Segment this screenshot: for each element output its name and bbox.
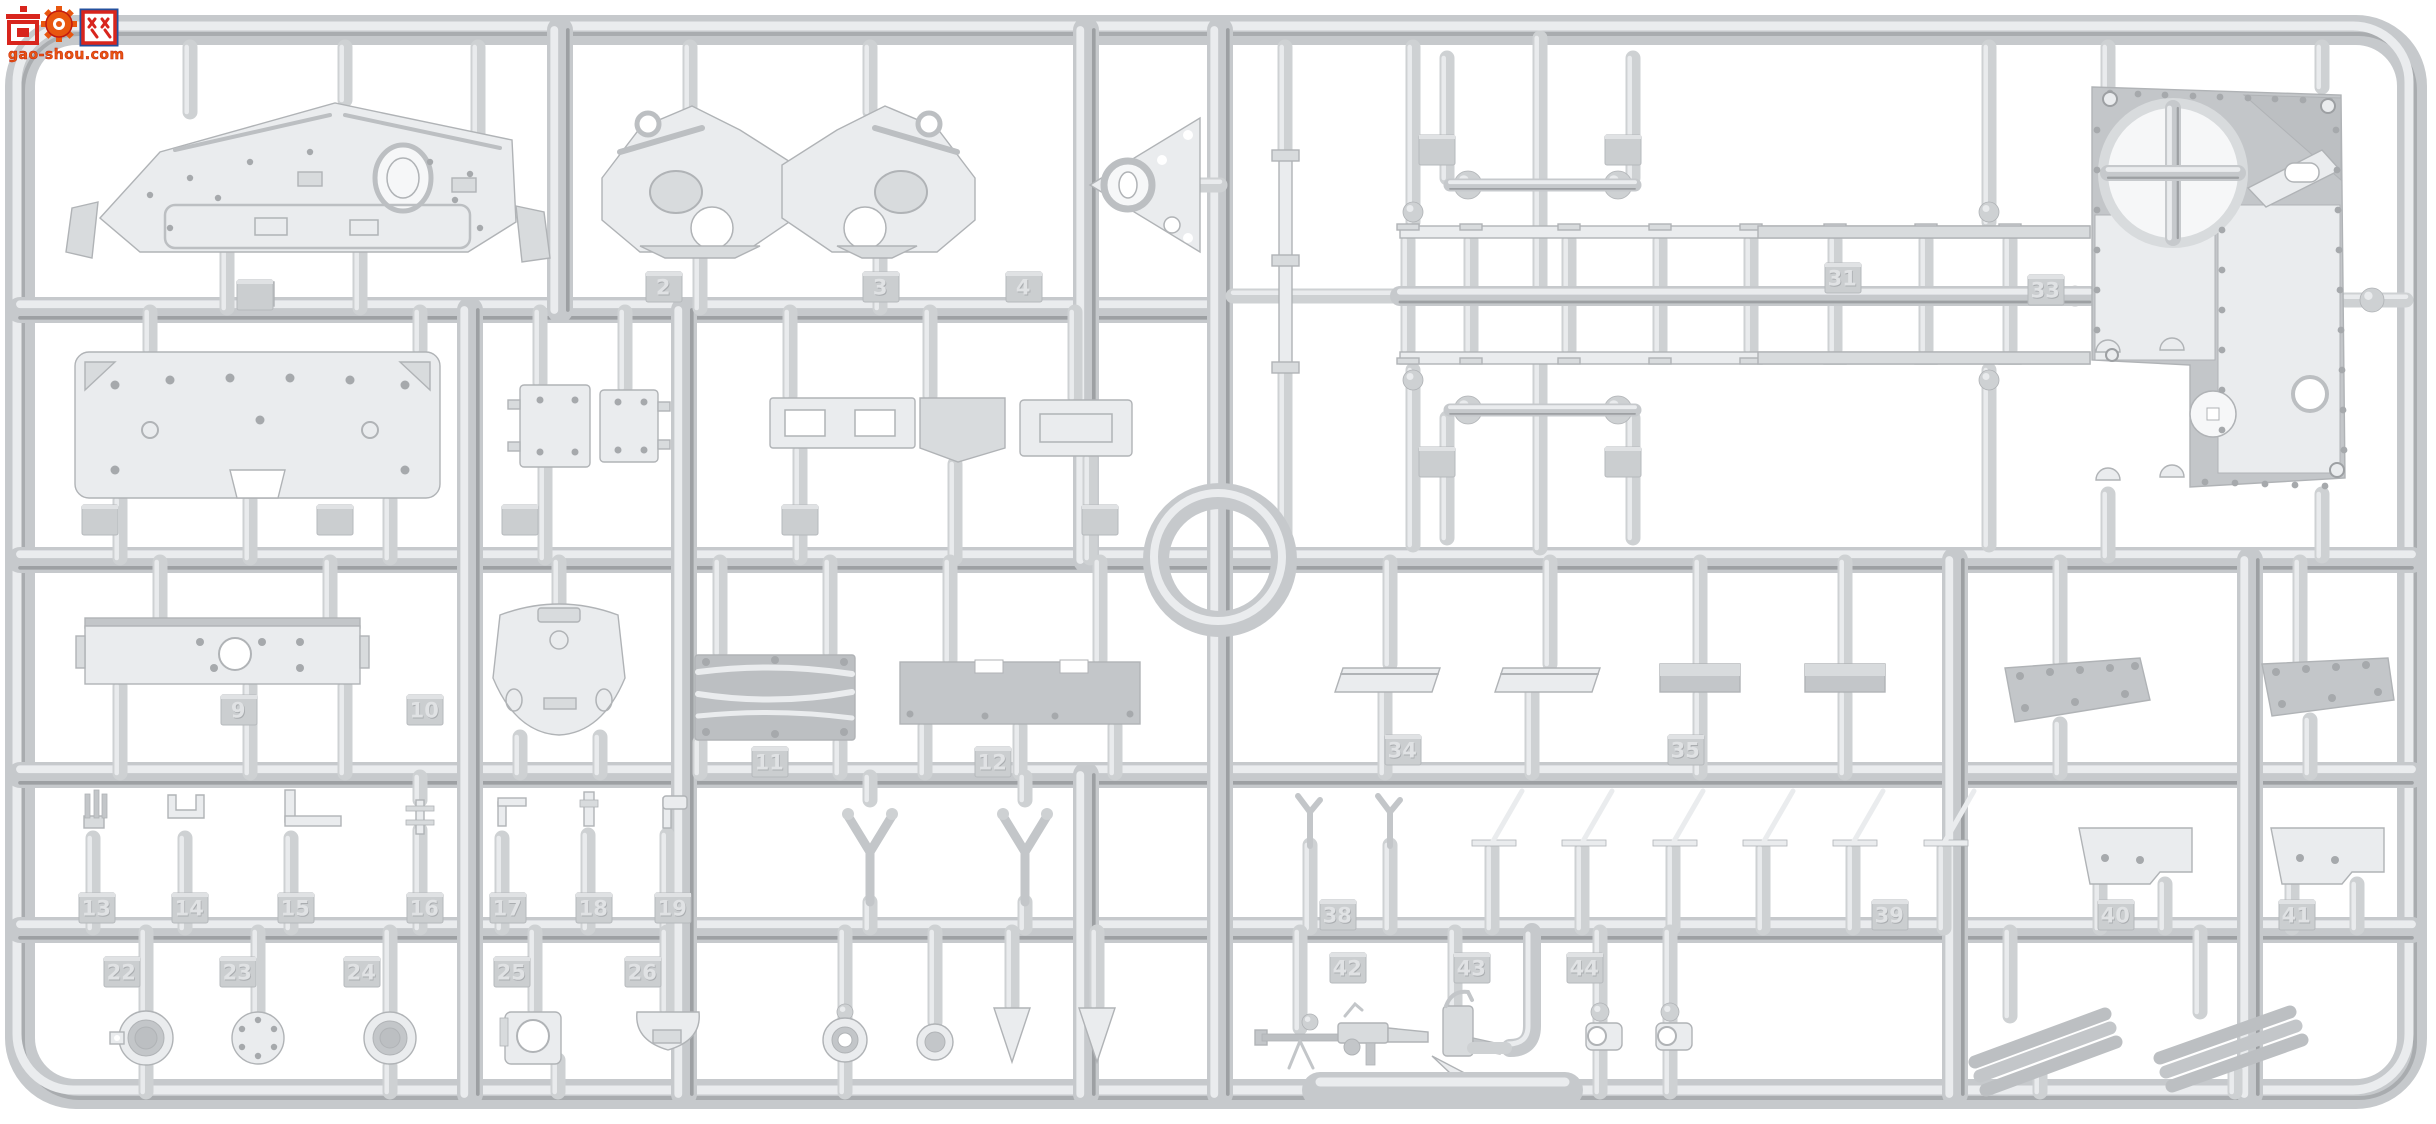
part-number-tab-blank: [782, 505, 818, 535]
svg-text:13: 13: [82, 897, 111, 921]
part-number-tab-26: 2626: [625, 957, 661, 987]
part-ring-small-b: [917, 1024, 953, 1060]
part-hatch-ring-24: [364, 1012, 416, 1064]
svg-text:42: 42: [1333, 957, 1362, 981]
part-number-tab-blank: [1419, 135, 1455, 165]
part-fitting-18: [580, 792, 598, 826]
svg-text:4: 4: [1016, 276, 1031, 300]
part-hatch-ring-22: [110, 1011, 173, 1065]
svg-text:16: 16: [410, 897, 439, 921]
part-number-tab-22: 2222: [104, 957, 140, 987]
part-shelf-bracket-34-b: [1495, 668, 1600, 692]
part-number-tab-blank: [1605, 447, 1641, 477]
svg-text:35: 35: [1671, 739, 1700, 763]
svg-text:3: 3: [873, 276, 888, 300]
part-y-fork-b: [997, 808, 1053, 902]
svg-text:43: 43: [1457, 957, 1486, 981]
part-number-tab-blank: [502, 505, 538, 535]
part-number-tab-41: 4141: [2279, 900, 2315, 930]
svg-text:22: 22: [107, 961, 136, 985]
svg-text:18: 18: [579, 897, 608, 921]
part-notched-plate-12: [900, 660, 1140, 724]
svg-text:40: 40: [2101, 904, 2130, 928]
svg-text:23: 23: [223, 961, 252, 985]
sprue-illustration: 2233443131333399101011111212343435351313…: [0, 0, 2436, 1124]
part-number-tab-44: 4444: [1567, 953, 1603, 983]
part-hook-lever-38-b: [1378, 796, 1400, 846]
part-number-tab-18: 1818: [576, 893, 612, 923]
part-number-tab-3: 33: [863, 272, 899, 302]
part-number-tab-blank: [317, 505, 353, 535]
part-number-tab-17: 1717: [490, 893, 526, 923]
part-fitting-16: [406, 800, 434, 834]
part-riveted-guard-plate-a: [2005, 658, 2150, 722]
model-kit-sprue-photo: 2233443131333399101011111212343435351313…: [0, 0, 2436, 1124]
part-seat-brackets-39: [1472, 791, 1974, 846]
svg-text:44: 44: [1570, 957, 1599, 981]
watermark: gao-shou.com: [4, 5, 134, 65]
part-storage-box-41: [2271, 828, 2384, 884]
svg-text:19: 19: [658, 897, 687, 921]
svg-text:17: 17: [493, 897, 522, 921]
part-number-tab-19: 1919: [655, 893, 691, 923]
part-riveted-guard-plate-b: [2262, 658, 2394, 716]
sprue-label-bar: [1320, 1082, 1565, 1090]
part-number-tab-16: 1616: [407, 893, 443, 923]
svg-text:2: 2: [656, 276, 671, 300]
part-number-tab-35: 3535: [1668, 735, 1704, 765]
part-number-tab-25: 2525: [494, 957, 530, 987]
part-bolted-disc-23: [232, 1012, 284, 1064]
part-hull-floor-plate: [75, 352, 440, 498]
part-number-tab-10: 1010: [407, 695, 443, 725]
part-number-tab-40: 4040: [2098, 900, 2134, 930]
part-number-tab-39: 3939: [1872, 900, 1908, 930]
svg-text:9: 9: [231, 699, 246, 723]
part-number-tab-blank: [237, 280, 273, 310]
part-hinge-bracket-a: [508, 385, 590, 467]
part-number-tab-38: 3838: [1320, 900, 1356, 930]
svg-text:24: 24: [347, 961, 376, 985]
part-round-shield-10: [493, 604, 625, 735]
part-number-tab-14: 1414: [172, 893, 208, 923]
part-fitting-14: [168, 795, 204, 818]
svg-text:39: 39: [1875, 904, 1904, 928]
part-engine-deck-panel: [2092, 87, 2347, 489]
part-number-tab-4: 44: [1006, 272, 1042, 302]
part-number-tab-blank: [82, 505, 118, 535]
part-towing-eye-44-b: [1656, 1023, 1692, 1050]
part-number-tab-blank: [1605, 135, 1641, 165]
part-side-plate-9: [76, 618, 369, 684]
part-number-tab-15: 1515: [278, 893, 314, 923]
part-number-tab-34: 3434: [1385, 735, 1421, 765]
svg-text:15: 15: [281, 897, 310, 921]
svg-text:33: 33: [2031, 279, 2060, 303]
svg-text:41: 41: [2282, 904, 2311, 928]
part-number-tab-11: 1111: [752, 747, 788, 777]
part-cone-a: [994, 1008, 1030, 1062]
part-idler-mount-triangle-plate: [1090, 118, 1200, 252]
gear-icon: [41, 6, 77, 42]
part-number-tab-33: 3333: [2028, 275, 2064, 305]
svg-text:34: 34: [1388, 739, 1417, 763]
part-final-drive-housing-right: [782, 106, 975, 258]
part-shelf-bracket-34-a: [1335, 668, 1440, 692]
svg-text:38: 38: [1323, 904, 1352, 928]
part-number-tab-23: 2323: [220, 957, 256, 987]
part-number-tab-43: 4343: [1454, 953, 1490, 983]
part-clamp-bracket-25: [500, 1012, 561, 1064]
part-bracket-rail-assembly: [770, 398, 1132, 462]
svg-text:26: 26: [628, 961, 657, 985]
part-number-tab-24: 2424: [344, 957, 380, 987]
part-number-tab-2: 22: [646, 272, 682, 302]
part-fitting-13: [84, 790, 107, 828]
svg-text:12: 12: [978, 751, 1007, 775]
part-machine-gun-42: [1255, 1004, 1428, 1068]
part-curved-plate-35-b: [1805, 664, 1885, 692]
part-narrow-strip-part: [1272, 150, 1299, 373]
part-number-tab-9: 99: [221, 695, 257, 725]
part-number-tab-blank: [1082, 505, 1118, 535]
part-hook-lever-38-a: [1298, 796, 1320, 846]
svg-text:14: 14: [175, 897, 204, 921]
part-towing-eye-44-a: [1586, 1023, 1622, 1050]
part-y-fork-a: [842, 808, 898, 902]
part-hinge-bracket-b: [600, 390, 670, 462]
watermark-url: gao-shou.com: [8, 47, 125, 63]
part-number-tab-12: 1212: [975, 747, 1011, 777]
svg-text:31: 31: [1828, 267, 1857, 291]
svg-text:10: 10: [410, 699, 439, 723]
svg-text:11: 11: [755, 751, 784, 775]
part-curved-plate-35-a: [1660, 664, 1740, 692]
part-corrugated-plate-11: [695, 655, 855, 740]
part-number-tab-13: 1313: [79, 893, 115, 923]
watermark-site-name-glyphs: [6, 6, 115, 43]
part-ring-small-a: [823, 1018, 867, 1062]
part-number-tab-blank: [1419, 447, 1455, 477]
part-final-drive-housing-left: [602, 106, 795, 258]
part-storage-box-40: [2079, 828, 2192, 884]
part-number-tab-31: 3131: [1825, 263, 1861, 293]
part-number-tab-42: 4242: [1330, 953, 1366, 983]
svg-text:25: 25: [497, 961, 526, 985]
part-fitting-17: [498, 798, 526, 826]
part-fitting-15: [285, 790, 341, 826]
